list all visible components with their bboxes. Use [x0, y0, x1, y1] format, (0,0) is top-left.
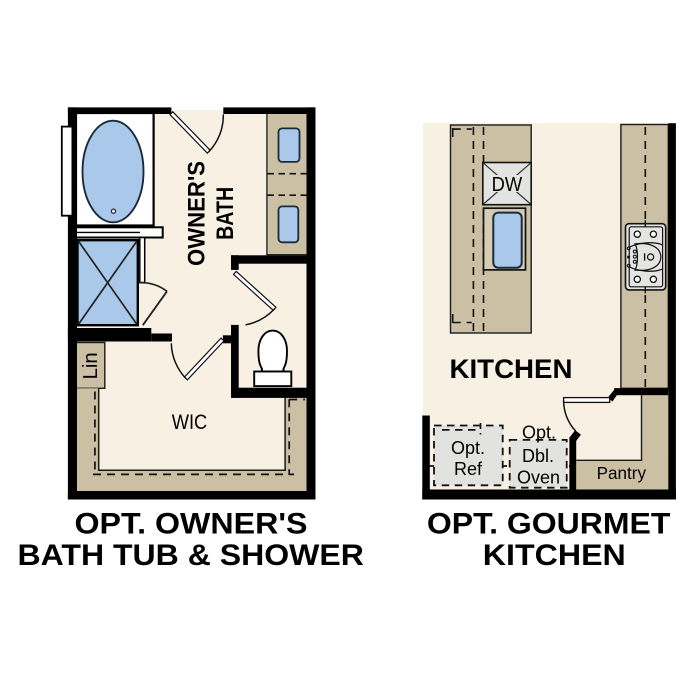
svg-text:BATH TUB & SHOWER: BATH TUB & SHOWER [18, 539, 365, 572]
svg-text:Ref: Ref [454, 459, 483, 479]
svg-text:OPT. GOURMET: OPT. GOURMET [427, 507, 671, 540]
svg-text:Opt.: Opt. [522, 423, 556, 443]
svg-text:Opt.: Opt. [451, 438, 485, 458]
svg-text:Pantry: Pantry [597, 463, 647, 483]
svg-text:BATH: BATH [212, 187, 239, 240]
svg-text:KITCHEN: KITCHEN [483, 539, 626, 572]
svg-text:DW: DW [492, 173, 523, 196]
svg-text:OWNER'S: OWNER'S [184, 161, 211, 266]
svg-text:WIC: WIC [172, 411, 208, 434]
svg-text:Dbl.: Dbl. [522, 446, 554, 466]
svg-text:KITCHEN: KITCHEN [450, 354, 573, 384]
svg-text:OPT. OWNER'S: OPT. OWNER'S [75, 507, 308, 540]
svg-text:Lin: Lin [80, 352, 102, 379]
svg-text:Oven: Oven [517, 468, 560, 488]
